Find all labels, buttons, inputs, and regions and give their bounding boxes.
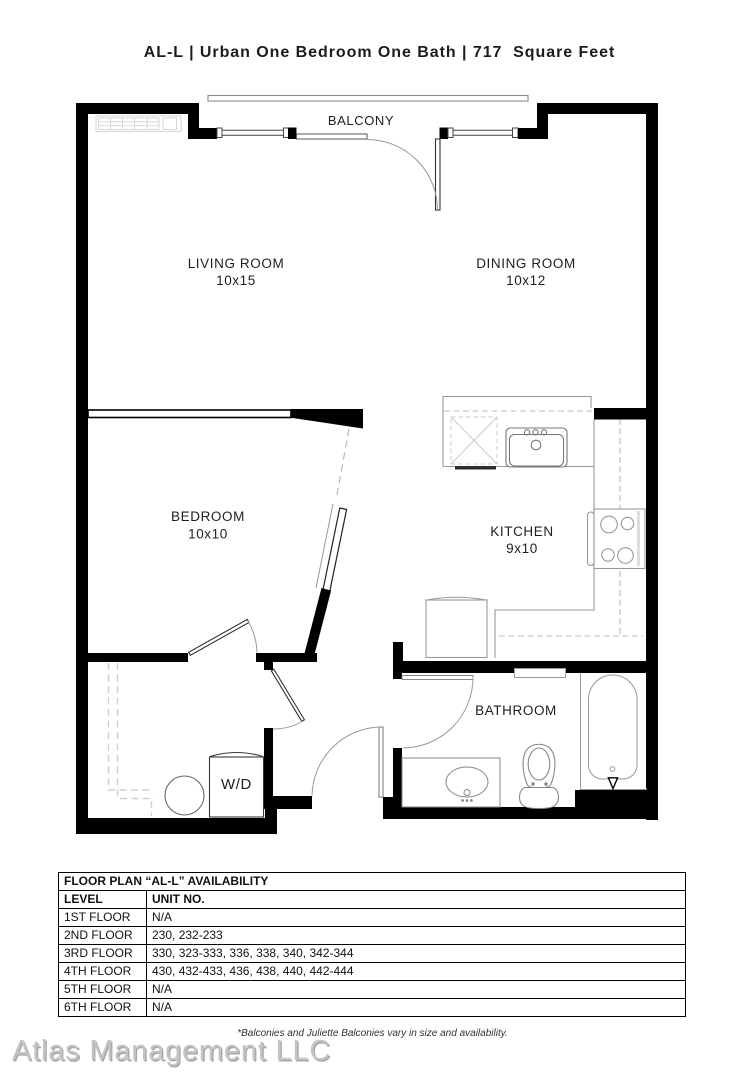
svg-text:W/D: W/D	[221, 776, 252, 793]
svg-text:9x10: 9x10	[506, 541, 538, 556]
svg-text:10x15: 10x15	[216, 273, 256, 288]
svg-text:LIVING ROOM: LIVING ROOM	[188, 256, 285, 271]
svg-text:10x10: 10x10	[188, 527, 228, 542]
svg-text:BALCONY: BALCONY	[328, 113, 394, 128]
svg-text:BATHROOM: BATHROOM	[475, 703, 557, 718]
svg-text:DINING ROOM: DINING ROOM	[476, 256, 576, 271]
svg-text:BEDROOM: BEDROOM	[171, 509, 245, 524]
svg-text:10x12: 10x12	[506, 273, 546, 288]
svg-text:KITCHEN: KITCHEN	[490, 524, 553, 539]
